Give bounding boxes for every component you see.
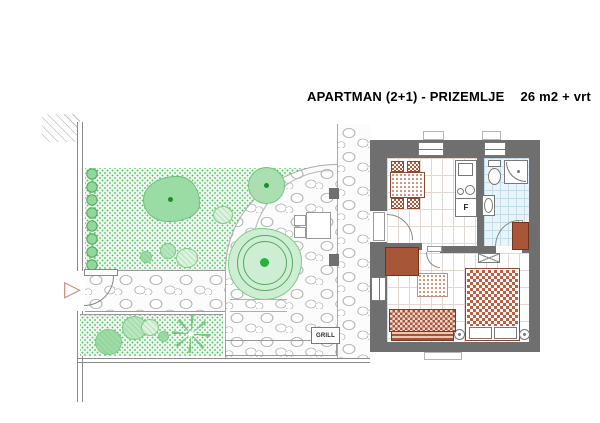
dining-table	[390, 172, 425, 198]
floor-plan-canvas: ▷ GRILL F	[0, 0, 600, 423]
window-sill	[482, 131, 501, 140]
sofa-seat-edge	[391, 331, 454, 341]
entrance-door-leaf	[373, 212, 385, 241]
wall-bottom	[370, 342, 540, 352]
gate-door-leaf	[84, 269, 118, 276]
bush	[141, 319, 159, 336]
wardrobe-left	[385, 247, 419, 276]
window-left	[371, 277, 386, 301]
dining-chair	[391, 161, 404, 172]
bed-blanket	[467, 270, 518, 326]
hob-icon	[458, 163, 473, 176]
window-sill	[424, 352, 462, 360]
washbasin-bowl-icon	[484, 198, 493, 213]
grill-label-box: GRILL	[311, 327, 340, 344]
sink-basin-large-icon	[465, 185, 475, 195]
bedside-lamp-icon	[519, 329, 530, 340]
ac-unit-icon	[478, 253, 500, 263]
rug	[417, 273, 448, 297]
toilet-tank-icon	[488, 160, 501, 167]
sofa-body	[389, 309, 456, 332]
bush	[140, 251, 152, 263]
path-step-lines	[230, 299, 287, 312]
fridge: F	[456, 198, 476, 216]
pillow	[494, 327, 517, 339]
wall-left	[370, 140, 387, 352]
kitchen-counter: F	[455, 160, 477, 217]
shower-drain-dot	[517, 170, 520, 173]
plan-title-name: APARTMAN (2+1) - PRIZEMLJE	[307, 89, 504, 104]
outdoor-chair	[294, 227, 306, 238]
wall-right	[529, 140, 540, 352]
sink-basin-small-icon	[457, 188, 464, 195]
tree-trunk-dot	[264, 183, 269, 188]
dining-chair	[407, 198, 420, 209]
bush	[158, 331, 169, 342]
garden-boundary-bottom	[77, 358, 370, 363]
bush	[213, 206, 233, 224]
outdoor-chair	[294, 215, 306, 226]
outdoor-table	[306, 212, 331, 239]
bush	[176, 248, 198, 268]
bush	[160, 243, 176, 259]
hedge-row	[86, 168, 99, 272]
plan-title: APARTMAN (2+1) - PRIZEMLJE26 m2 + vrt	[307, 89, 591, 104]
tree-island-trunk-dot	[260, 258, 269, 267]
bush	[95, 329, 122, 355]
wall-top	[370, 140, 540, 158]
toilet-bowl-icon	[488, 168, 501, 185]
pergola-post	[329, 188, 339, 199]
window-sill	[423, 131, 444, 140]
patio-strip	[337, 124, 370, 358]
window-top-2	[484, 142, 506, 156]
boundary-break-hatch-icon	[42, 114, 80, 142]
entrance-arrow-icon: ▷	[64, 278, 81, 300]
pergola-post	[329, 254, 339, 266]
pillow	[469, 327, 492, 339]
palm-plant-icon	[172, 315, 210, 353]
tree-trunk-dot	[168, 197, 173, 202]
grill-label: GRILL	[316, 333, 335, 339]
window-top-1	[418, 142, 444, 156]
dining-chair	[391, 198, 404, 209]
wardrobe-right	[512, 222, 529, 250]
plan-title-area: 26 m2 + vrt	[520, 89, 591, 104]
dining-chair	[407, 161, 420, 172]
